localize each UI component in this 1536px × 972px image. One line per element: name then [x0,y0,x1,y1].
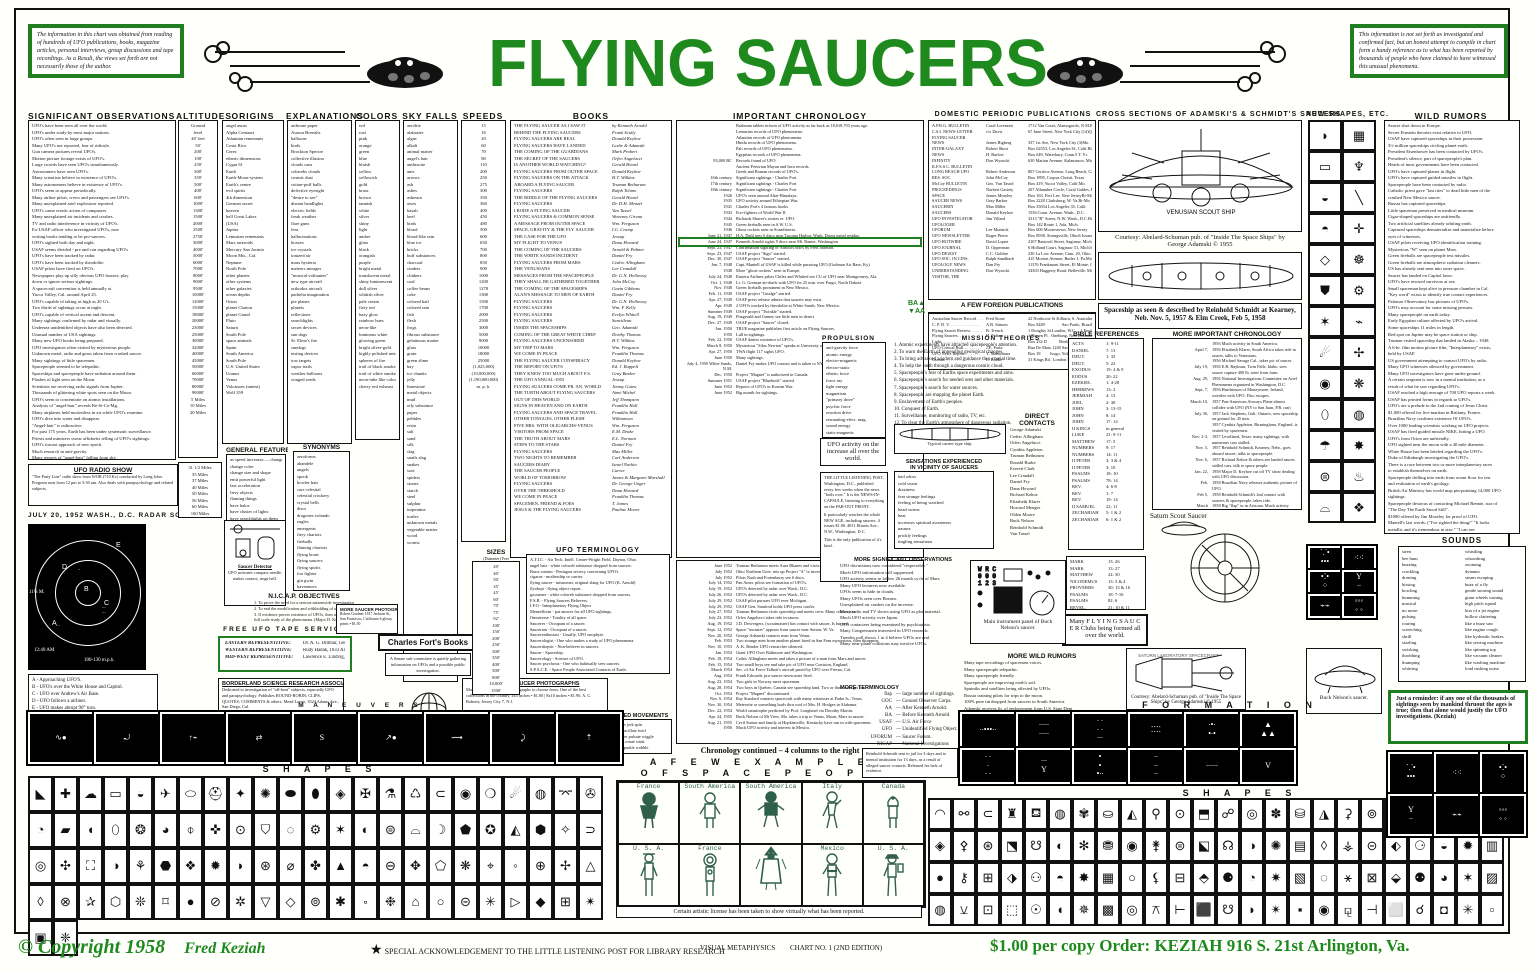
spacepeople-label: South America [684,783,735,790]
radio-show-header: UFO RADIO SHOW [32,467,174,474]
spacepeople-label: South America [746,783,797,790]
sky-falls-list: aerolitealabasteralgaealkalianimal matte… [403,120,458,682]
bible-header: BIBLE REFERENCES [1068,331,1144,338]
fort-books-block: Charles Fort's Books A Senate sub-commit… [378,634,478,676]
reminder-box: Just a reminder: if any one of the thous… [1388,690,1528,744]
order-info: $1.00 per copy Order: KEZIAH 916 S. 21st… [990,936,1530,956]
synonyms-list: aeroformsabandeleangelsspookhowler hatsc… [293,451,350,591]
saucer-illustration-left [195,30,445,104]
more-photos-text: Robert Gardner 1817 Jackson St., San Fra… [340,612,394,627]
spacepeople-cell: South America [679,782,740,844]
spacepeople-cell: Canada [863,782,924,844]
fort-books-title: Charles Fort's Books [378,634,478,651]
more-chron-list: 1956 Much activity in South America.Apri… [1152,338,1302,510]
star-icon: ★ [370,943,383,958]
more-observations-block: MORE SIGNIFICANT OBSERVATIONS UFO discus… [838,556,968,649]
radio-show-box: UFO RADIO SHOW "The Party Line" radio sh… [28,464,178,506]
books-list: THE FLYING SAUCER AS I SAW ITby Kenneth … [510,120,672,558]
more-wild-rumors-list: Many tape recordings of spacemen voices.… [964,660,1120,712]
listening-post-text2: It particularly watches the whole NEW AG… [824,512,884,535]
header-publications: DOMESTIC PERIODIC PUBLICATIONS [928,111,1098,118]
terminology-block: UFO TERMINOLOGY A.T.I.C. - Air Tech. Int… [524,546,672,675]
new-shapes-dark-grid: ⸪• •••⁖⁖•⁚• ⁘Y ∙∙⌁⌁◦◦◦ ◦ ◦ [1308,546,1380,618]
altitudes-list: Groundlevel40' feet50'200'100'250'300'35… [178,120,218,458]
more-photos-box: MORE SAUCER PHOTOGRAPHS Robert Gardner 1… [336,604,398,634]
colors-list: redrustpinkorangegreenbluebluishyellowye… [355,120,400,440]
more-chron-block: MORE IMPORTANT CHRONOLOGY 1956 Much acti… [1150,330,1304,511]
flying-saucers-chart: The information in this chart was obtain… [0,0,1536,972]
spacepeople-cell: South America [740,782,801,844]
schmidt-caption: Spaceship as seen & described by Reinhol… [1098,303,1302,329]
carrier-caption: Typical carrier type ship. [898,441,1002,446]
spacepeople-caption: Certain artistic license has been taken … [616,906,922,918]
spacepeople-label: U. S. A. [633,845,664,852]
radar-label-e: E [116,542,121,549]
radar-speed: 100-130 m.p.h. [84,658,115,663]
radar-range: 11¼ M. [29,590,45,595]
spacepeople-cell: U. S. A. [863,844,924,906]
shapes-label-right: S H A P E S [1080,788,1400,798]
radio-show-text: "The Party Line" radio show from WOR (71… [32,474,174,491]
direct-contacts-list: George AdamskiCedric AllinghamOrfeo Ange… [1010,427,1064,538]
publications-list: A.P.R.G. BULLETINCoral Lorenzen1712 Van … [928,120,1096,300]
sensations-block: SENSATIONS EXPERIENCED IN VICINITY OF SA… [892,458,996,550]
saucer-detector-text: UFO activates compass needle, makes cont… [228,570,282,582]
schmidt-cigar-diagram [1098,252,1302,300]
saturn-scout-caption: Saturn Scout Saucer [1150,512,1300,520]
ufo-activity-box: UFO activity on the increase all over th… [820,438,886,466]
jail-note-box: Reinhold Schmidt sent to jail for 3 days… [862,748,958,778]
altitudes-miles-list: 31 1/2 Miles35 Miles37 Miles40 Miles50 M… [178,462,222,518]
acknowledgement: ★ SPECIAL ACKNOWLEDGEMENT TO THE LITTLE … [370,942,725,959]
buck-nelson-caption: Buck Nelson's saucer. [1310,695,1378,701]
bible-list: ACTS1: 9-11DANIEL7: 13DEUT.1: 33DEUT.5: … [1068,338,1144,550]
header-cross-sections: CROSS SECTIONS OF ADAMSKI'S & SCHMIDT'S … [1096,111,1302,118]
spacepeople-label: U. S. A. [878,845,909,852]
sensations-list: bad odorscold sweatdizzinessfear strange… [894,471,994,549]
more-wild-rumors-block: MORE WILD RUMORS Many tape recordings of… [962,652,1122,713]
maneuvers-row: ∿●⤾↑⌁⇄S⃕↗●⟿⤸⇡ [28,712,640,764]
direct-contacts-header2: CONTACTS [1010,420,1064,427]
copyright-text: © Copyright 1958 [18,936,165,958]
right-bottom-formations: ⸪• •••⁖⁖•⁚• ⁘Y ∙∙⌁⌁◦◦◦ ◦ ◦ [1388,752,1532,836]
spacepeople-label: Canada [882,783,905,790]
listening-post-text3: This is the only publication of it's kin… [824,537,884,549]
direct-contacts-header: DIRECT [1010,413,1064,420]
svg-text:1 2 3: 1 2 3 [978,580,996,587]
explanations-list: airborne paperAurora Borealisballoonsbir… [287,120,352,444]
propulsion-block: PROPULSION anti-gravity forceatomic ener… [820,334,888,439]
radar-legend: A - Approaching UFO'S.B - UFO's over the… [28,674,158,714]
venusian-scout-label: VENUSIAN SCOUT SHIP [1167,210,1236,216]
venusian-scout-diagram: VENUSIAN SCOUT SHIP [1098,120,1302,232]
spacepeople-label: Mexico [820,845,843,852]
terminology-list: A.T.I.C. - Air Tech. Intell. Center-Wrig… [526,554,670,674]
shapes-label-left: S H A P E S [160,764,480,774]
spacepeople-label: France [637,783,660,790]
courtesy-caption-1: Courtesy: Abelard-Schuman pub. of "Insid… [1108,234,1292,248]
observations-list: UFO's have been seen all over the world.… [28,120,176,460]
radar-scope: E D B C A 12:40 AM 100-130 m.p.h. 11¼ M.… [28,524,146,670]
formations-grid: ∙∙•••∙∙∙∙∙∙∙ ∙∙∙∙∙∙ ∙ ∙ ∙ ∙∙∙⁚⁚⁚⁚∙•∙ •∙•… [960,712,1308,784]
radar-label-b: B [84,586,89,593]
maneuvers-label: M A N E U V E R S [290,702,430,709]
ack-text: SPECIAL ACKNOWLEDGEMENT TO THE LITTLE LI… [385,947,725,956]
sizes-block: SIZES (Diameter) Feet 20'40'50'35'45'60'… [470,548,522,696]
wild-rumors-list: Saucer shot down in Europe.Secret Einste… [1384,120,1520,534]
sounds-header: SOUNDS [1398,536,1526,545]
instrument-panel-caption: Main instrument panel of Buck Nelson's s… [974,619,1062,631]
ba-aa-marker: BA▲▼AA [908,300,924,315]
spacepeople-label: Italy [822,783,842,790]
ba-label: BA [908,300,918,307]
radar-label-d: D [62,564,67,571]
propulsion-list: anti-gravity forceatomic energyelectro-m… [822,342,886,438]
direct-contacts-block: DIRECT CONTACTS George AdamskiCedric All… [1008,412,1066,539]
speeds-list: 1516206070801102002502753003503604004504… [461,120,506,542]
bible-list-2: MARK13: 26MARK13: 27MATTHEW24: 30NICODEM… [1066,556,1146,610]
header-new-shapes: NEW SHAPES, ETC. [1306,111,1380,118]
new-shapes-grid: ◗▦▭♆◒╲◓✛◇☸⛊⚙✶⌁☄✢◉❋⬯◍☂✸⊜♨⌓❖ [1308,120,1380,523]
saucer-illustration-right [1045,30,1295,104]
aa-label: AA [915,308,925,315]
propulsion-header: PROPULSION [822,335,886,342]
brand-label: VISUAL METAPHYSICS [700,944,775,952]
radar-header: JULY 20, 1952 WASH., D.C. RADAR SCOPE [28,512,178,519]
spacepeople-cell: U. S. A. [618,844,679,906]
saturn-scout-block: Saturn Scout Saucer [1150,512,1300,606]
more-observations-list: UFO discussions now considered "respecta… [840,563,966,648]
sizes-header: SIZES [472,549,520,556]
carrier-ship-box: Typical carrier type ship. [894,424,1006,454]
fort-note: A Senate sub-committee is quietly gather… [385,653,471,676]
spacepeople-label: France [698,845,721,852]
sizes-list: 20'40'50'35'45'60'70'75'92'100'150'200'2… [472,561,520,695]
spacepeople-cell: Mexico [802,844,863,906]
more-chron-header: MORE IMPORTANT CHRONOLOGY [1152,331,1302,338]
instrument-panel-box: W R C0 0 01 2 3 Main instrument panel of… [970,560,1066,644]
sounds-list: sirenbee humbuzzingcracklingdroninghissi… [1398,546,1526,682]
svg-text:0 0 0: 0 0 0 [978,573,996,580]
spacepeople-cell: France [618,782,679,844]
spacepeople-grid: France South America South America Italy… [616,780,926,908]
svg-text:SATURN LABORATORY SPACECRAFT: SATURN LABORATORY SPACECRAFT [1138,653,1219,658]
svg-text:W R C: W R C [978,566,996,573]
tape-service-box: EASTERN REPRESENTITIVE:Dr. A. G. Dittmar… [218,636,352,672]
terminology-header: UFO TERMINOLOGY [526,547,670,554]
origins-list: angel aurasAlpha CentauriAtlantian remen… [222,120,284,444]
copyright: © Copyright 1958 Fred Keziah [18,936,266,959]
header-foreign-publications: A FEW FOREIGN PUBLICATIONS [928,302,1096,309]
spacepeople-cell: Italy [802,782,863,844]
radar-time: 12:40 AM [34,648,54,653]
spacepeople-cell: France [679,844,740,906]
general-features-header: GENERAL FEATURES [226,447,286,454]
bible-block: BIBLE REFERENCES ACTS1: 9-11DANIEL7: 13D… [1066,330,1146,551]
clubs-note: Many F L Y I N G S A U C E R Clubs being… [1062,614,1148,646]
synonyms-header: SYNONYMS [293,444,350,451]
tape-service-header: FREE UFO TAPE SERVICE [218,626,352,633]
spacepeople-cell [740,844,801,906]
chart-number: CHART NO. 1 (2ND EDITION) [790,944,882,952]
more-wild-rumors-header: MORE WILD RUMORS [964,653,1120,660]
synonyms-block: SYNONYMS aeroformsabandeleangelsspookhow… [291,443,352,592]
nicap-header: N.I.C.A.P. OBJECTIVES [254,593,354,600]
author-name: Fred Keziah [184,940,265,957]
shapes-grid-left: ◣✚☁▭◒✈⬭⛑✦✺⬬⬮◈✠⚗♺⊂◉❍☄◍⌤✇◔▰◖⬯❂◕⌽✜⊙⛉◌⚙✶◐⊜⌓☽… [28,776,608,956]
listening-post-text: THE LITTLE LISTENING POST, Washington, D… [824,475,884,510]
